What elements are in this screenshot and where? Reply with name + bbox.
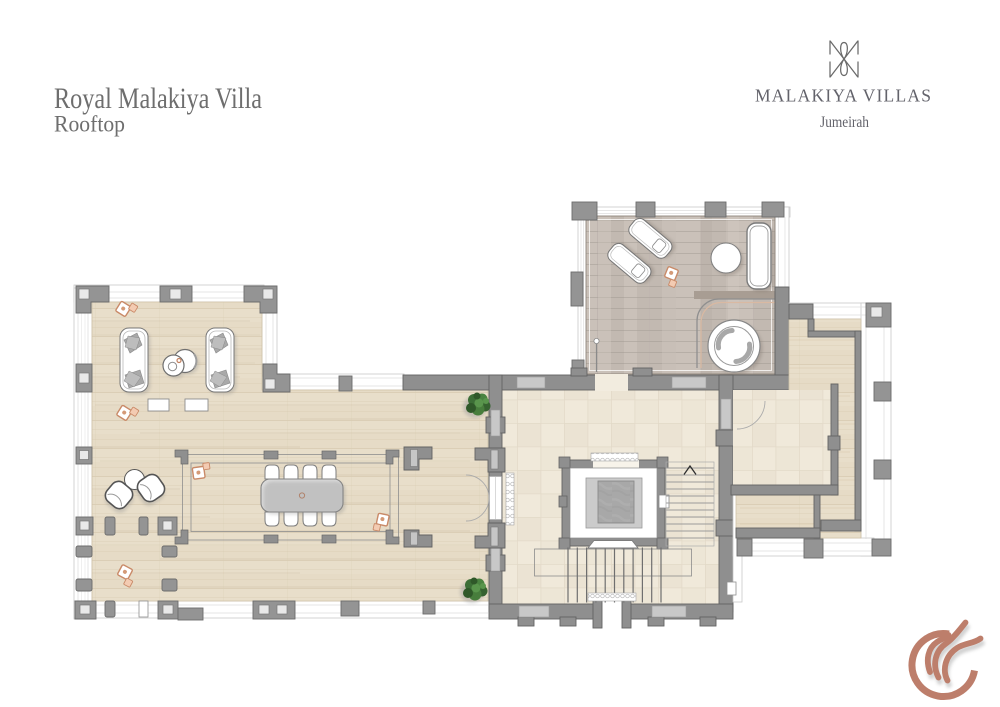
svg-text:Jumeirah: Jumeirah — [820, 114, 869, 131]
svg-text:Rooftop: Rooftop — [54, 112, 125, 137]
svg-text:Royal Malakiya Villa: Royal Malakiya Villa — [54, 82, 262, 115]
svg-text:MALAKIYA VILLAS: MALAKIYA VILLAS — [755, 86, 931, 106]
